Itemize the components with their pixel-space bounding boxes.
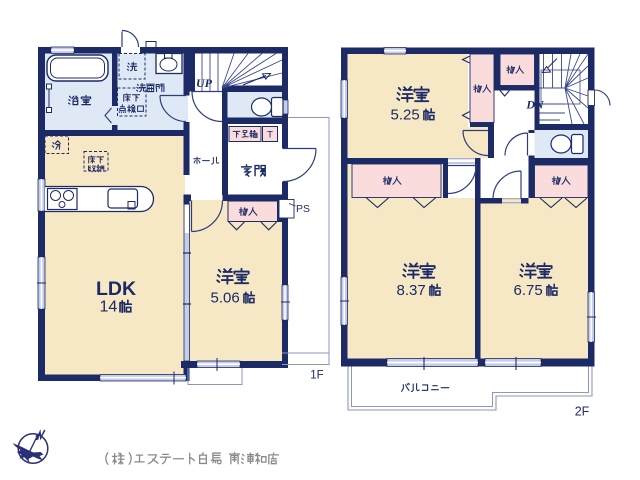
svg-text:6.75: 6.75 [514,282,543,299]
svg-text:LDK: LDK [96,278,136,300]
svg-text:1F: 1F [310,370,323,382]
svg-text:PS: PS [296,203,310,215]
svg-text:8.37: 8.37 [397,282,426,299]
svg-text:UP: UP [196,76,213,90]
svg-text:2F: 2F [575,405,590,419]
svg-text:5.25: 5.25 [391,107,420,124]
svg-text:14: 14 [100,299,118,316]
svg-text:T: T [267,130,273,141]
svg-text:DN: DN [525,98,545,112]
svg-text:5.06: 5.06 [211,290,240,307]
